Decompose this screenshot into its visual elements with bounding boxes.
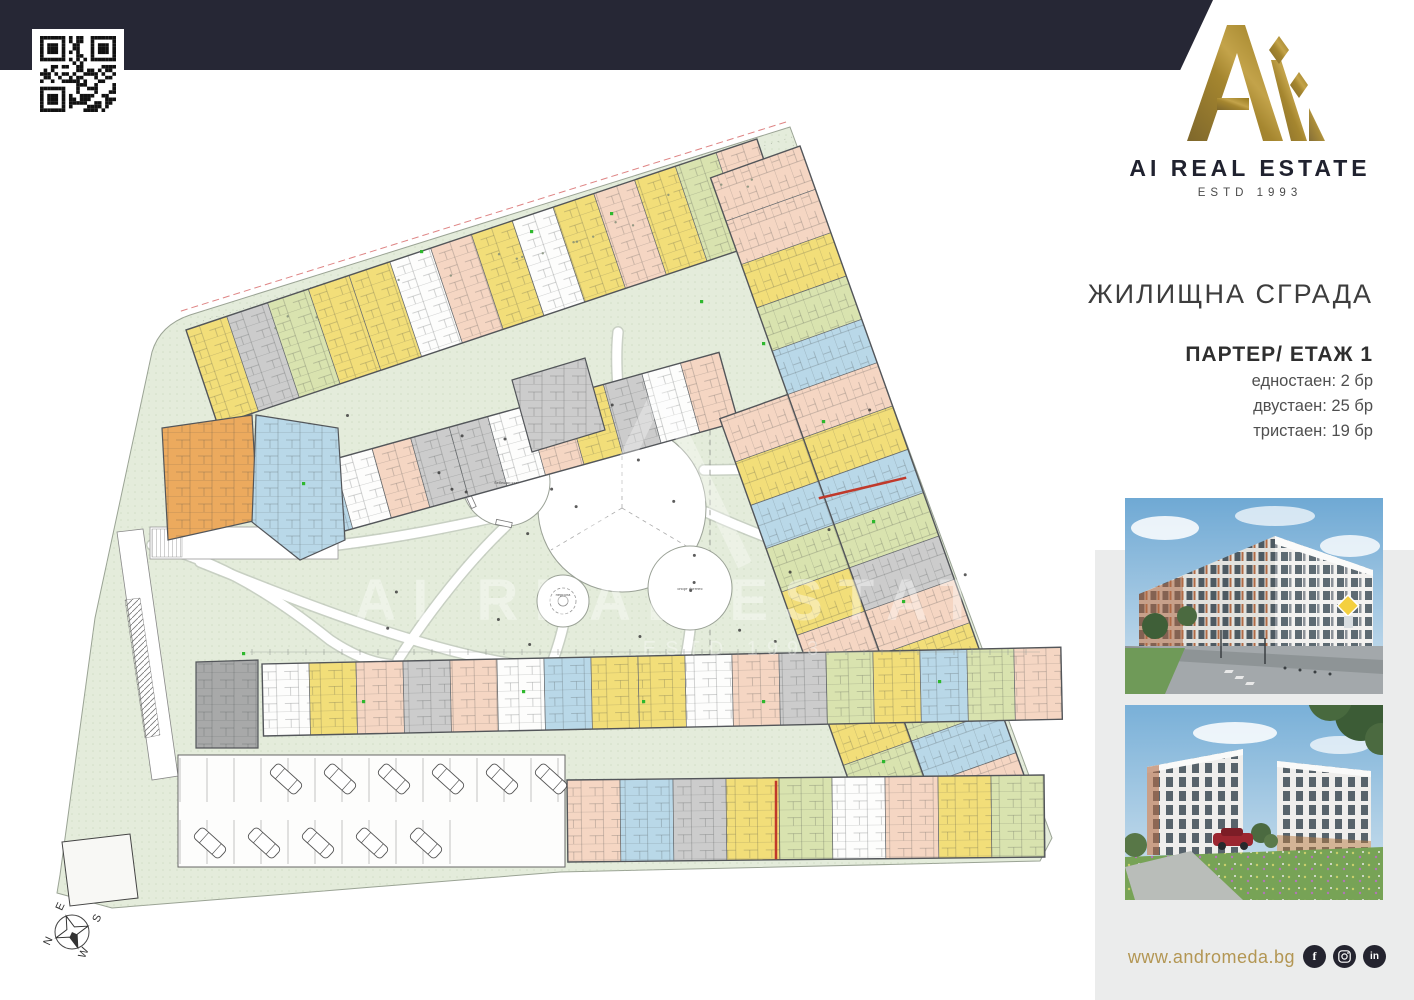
brand-logo-mark bbox=[1175, 20, 1325, 146]
entrance-marker bbox=[882, 760, 885, 763]
stat-two-room: двустаен: 25 бр bbox=[1088, 396, 1373, 417]
plaza-label-right: спорт фитнес bbox=[677, 586, 702, 591]
render-photo-street bbox=[1125, 498, 1383, 694]
building-title: ЖИЛИЩНА СГРАДА bbox=[1088, 279, 1373, 310]
entrance-marker bbox=[242, 652, 245, 655]
entrance-marker bbox=[642, 700, 645, 703]
qr-code bbox=[32, 29, 124, 119]
brand-logo: AI REAL ESTATE ESTD 1993 bbox=[1120, 20, 1380, 199]
entrance-marker bbox=[610, 212, 613, 215]
compass-e: E bbox=[54, 901, 68, 913]
top-banner bbox=[0, 0, 1213, 70]
website-link[interactable]: www.andromeda.bg bbox=[1128, 947, 1295, 968]
entrance-marker bbox=[420, 250, 423, 253]
entrance-marker bbox=[362, 700, 365, 703]
entrance-marker bbox=[762, 342, 765, 345]
entrance-marker bbox=[938, 680, 941, 683]
facebook-icon[interactable]: f bbox=[1303, 945, 1326, 968]
linkedin-icon[interactable]: in bbox=[1363, 945, 1386, 968]
unit-band-bottom-commercial bbox=[567, 775, 1045, 862]
entrance-marker bbox=[522, 690, 525, 693]
parking-area bbox=[178, 755, 568, 867]
entrance-marker bbox=[822, 420, 825, 423]
render-photo-courtyard bbox=[1125, 705, 1383, 900]
stat-three-room: тристаен: 19 бр bbox=[1088, 421, 1373, 442]
entrance-marker bbox=[762, 700, 765, 703]
instagram-icon[interactable] bbox=[1333, 945, 1356, 968]
entrance-marker bbox=[700, 300, 703, 303]
compass-s: S bbox=[90, 913, 104, 925]
plaza-label-left: бебешки кът bbox=[494, 480, 517, 485]
footer: www.andromeda.bg f in bbox=[1095, 938, 1414, 978]
floor-plan: AI REAL ESTATE ESTD 1993 бебешки кът пер… bbox=[0, 0, 1095, 1000]
watermark-estd: ESTD 1993 bbox=[643, 638, 827, 660]
stat-one-room: едностаен: 2 бр bbox=[1088, 371, 1373, 392]
brand-estd: ESTD 1993 bbox=[1120, 187, 1380, 199]
compass-n: N bbox=[41, 935, 55, 947]
entrance-marker bbox=[872, 520, 875, 523]
entrance-marker bbox=[302, 482, 305, 485]
floor-title: ПАРТЕР/ ЕТАЖ 1 bbox=[1088, 343, 1373, 367]
brand-name: AI REAL ESTATE bbox=[1120, 155, 1380, 182]
watermark-text: AI REAL ESTATE bbox=[354, 568, 1045, 633]
plaza-label-ring: пергола bbox=[556, 592, 571, 597]
entrance-marker bbox=[530, 230, 533, 233]
compass: E S N W bbox=[41, 901, 104, 960]
